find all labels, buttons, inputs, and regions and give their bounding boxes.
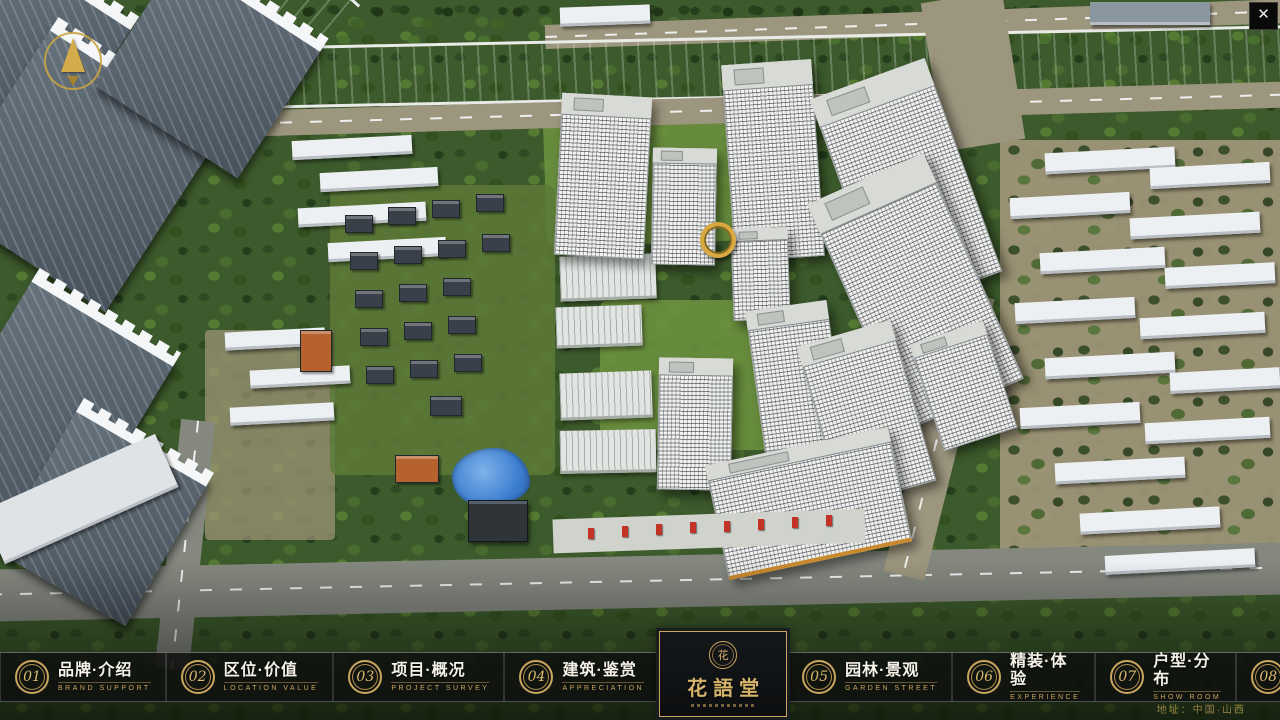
nav-item-room-view[interactable]: 08 一房·一景 COMMUNITY [1236, 653, 1280, 701]
nav-number-badge: 03 [348, 660, 382, 694]
nav-number-badge: 04 [519, 660, 553, 694]
nav-number-badge: 07 [1110, 660, 1144, 694]
brand-logo-panel: 花 花語堂 [659, 631, 787, 717]
flag [656, 524, 662, 535]
courtyard-house [454, 354, 482, 372]
nav-item-floorplan-distribution[interactable]: 07 户型·分布 SHOW ROOM [1095, 653, 1236, 701]
nav-text: 项目·概况 PROJECT SURVEY [391, 662, 489, 692]
nav-number-badge: 08 [1251, 660, 1280, 694]
nav-sublabel: BRAND SUPPORT [58, 682, 151, 692]
courtyard-house [355, 290, 383, 308]
nav-number-badge: 05 [802, 660, 836, 694]
flag [758, 519, 764, 530]
nav-sublabel: GARDEN STREET [845, 682, 937, 692]
nav-text: 区位·价值 LOCATION VALUE [224, 662, 319, 692]
midrise-building [560, 429, 657, 474]
nav-label: 园林·景观 [845, 662, 919, 680]
nav-item-garden-landscape[interactable]: 05 园林·景观 GARDEN STREET [787, 653, 952, 701]
courtyard-house [350, 252, 378, 270]
courtyard-house [410, 360, 438, 378]
nav-sublabel: LOCATION VALUE [224, 682, 319, 692]
clubhouse [300, 330, 332, 372]
flag [792, 517, 798, 528]
courtyard-house [345, 215, 373, 233]
gold-ring-sculpture [700, 222, 736, 258]
flag [724, 521, 730, 532]
nav-item-architecture[interactable]: 04 建筑·鉴赏 APPRECIATION [504, 653, 659, 701]
nav-label: 品牌·介绍 [58, 662, 132, 680]
building-row [1090, 2, 1210, 25]
clubhouse [395, 455, 439, 483]
nav-number-badge: 02 [181, 660, 215, 694]
nav-number-badge: 01 [15, 660, 49, 694]
flag [690, 522, 696, 533]
flag [622, 526, 628, 537]
logo-divider [691, 704, 755, 707]
nav-label: 建筑·鉴赏 [562, 662, 636, 680]
courtyard-house [448, 316, 476, 334]
courtyard-house [430, 396, 462, 416]
tower [554, 93, 652, 259]
midrise-building [559, 370, 653, 420]
nav-left-group: 01 品牌·介绍 BRAND SUPPORT 02 区位·价值 LOCATION… [0, 653, 659, 701]
building-row [560, 4, 651, 26]
project-address: 地址：中国·山西 [1157, 701, 1246, 716]
courtyard-house [482, 234, 510, 252]
courtyard-house [360, 328, 388, 346]
nav-text: 户型·分布 SHOW ROOM [1153, 653, 1221, 701]
bottom-nav-bar: 01 品牌·介绍 BRAND SUPPORT 02 区位·价值 LOCATION… [0, 652, 1280, 702]
courtyard-house [443, 278, 471, 296]
nav-label: 项目·概况 [391, 662, 465, 680]
courtyard-house [366, 366, 394, 384]
nav-label: 精装·体验 [1010, 653, 1080, 689]
nav-item-project-survey[interactable]: 03 项目·概况 PROJECT SURVEY [333, 653, 504, 701]
nav-right-group: 05 园林·景观 GARDEN STREET 06 精装·体验 EXPERIEN… [787, 653, 1280, 701]
courtyard-house [404, 322, 432, 340]
courtyard-house [438, 240, 466, 258]
compass-icon[interactable] [44, 32, 102, 90]
nav-label: 户型·分布 [1153, 653, 1221, 689]
nav-text: 精装·体验 EXPERIENCE [1010, 653, 1080, 701]
nav-sublabel: EXPERIENCE [1010, 691, 1080, 701]
compass-tail [67, 76, 79, 86]
midrise-building [559, 253, 657, 301]
entrance-gate [468, 500, 528, 542]
nav-label: 区位·价值 [224, 662, 298, 680]
close-button[interactable]: ✕ [1249, 2, 1278, 30]
presentation-window: ✕ 01 品牌·介绍 BRAND SUPPORT 02 区位·价值 LOCATI… [0, 0, 1280, 720]
flag [588, 528, 594, 539]
courtyard-house [476, 194, 504, 212]
nav-sublabel: APPRECIATION [562, 682, 644, 692]
brand-logo-title: 花語堂 [681, 672, 765, 701]
courtyard-house [394, 246, 422, 264]
courtyard-house [399, 284, 427, 302]
landscape-pool [452, 448, 530, 506]
nav-item-interior-experience[interactable]: 06 精装·体验 EXPERIENCE [952, 653, 1095, 701]
north-arrow-icon [61, 38, 85, 72]
flag [826, 515, 832, 526]
nav-text: 建筑·鉴赏 APPRECIATION [562, 662, 644, 692]
nav-sublabel: PROJECT SURVEY [391, 682, 489, 692]
nav-number-badge: 06 [967, 660, 1001, 694]
courtyard-house [432, 200, 460, 218]
courtyard-house [388, 207, 416, 225]
nav-item-brand-intro[interactable]: 01 品牌·介绍 BRAND SUPPORT [0, 653, 166, 701]
nav-text: 园林·景观 GARDEN STREET [845, 662, 937, 692]
midrise-building [555, 305, 642, 349]
nav-text: 品牌·介绍 BRAND SUPPORT [58, 662, 151, 692]
nav-sublabel: SHOW ROOM [1153, 691, 1221, 701]
flower-seal-icon: 花 [709, 641, 737, 669]
nav-item-location-value[interactable]: 02 区位·价值 LOCATION VALUE [166, 653, 334, 701]
